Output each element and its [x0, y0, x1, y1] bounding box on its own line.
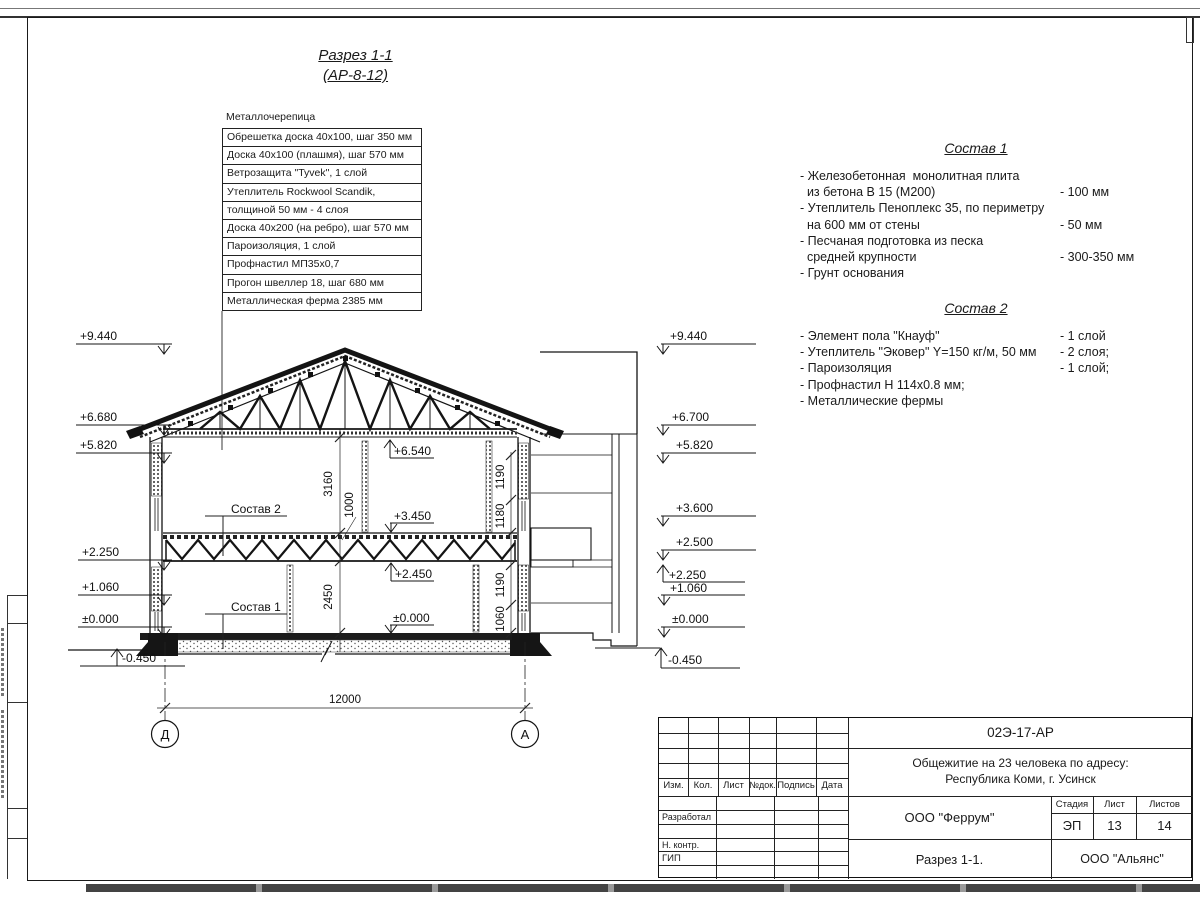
tb-designer-org: ООО "Феррум" — [848, 810, 1051, 825]
annex-window — [531, 528, 591, 560]
mark-right-2500: +2.500 — [676, 535, 713, 549]
tb-sheet-label: Лист — [1093, 799, 1136, 810]
tb-col-podpis: Подпись — [776, 780, 816, 791]
entrance-steps — [573, 633, 637, 646]
annex-elevation — [531, 352, 660, 648]
tb-col-izm: Изм. — [659, 780, 688, 791]
tb-row-gip: ГИП — [662, 853, 716, 864]
tb-col-data: Дата — [816, 780, 848, 791]
dim-total-width: 12000 — [329, 694, 361, 706]
tb-drawing-name: Разрез 1-1. — [848, 852, 1051, 867]
dim-w1-lower: 1060 — [495, 606, 507, 632]
tb-stage-value: ЭП — [1051, 818, 1093, 833]
mark-right-3600: +3.600 — [676, 501, 713, 515]
dim-w2-upper: 1190 — [495, 465, 507, 490]
mark-left-2250: +2.250 — [82, 545, 119, 559]
sostav-ref-leaders — [205, 516, 287, 649]
dim-w2-lower: 1180 — [495, 504, 507, 529]
tb-project-line1: Общежитие на 23 человека по адресу: — [848, 756, 1193, 770]
mark-left-9440: +9.440 — [80, 329, 117, 343]
sostav2-ref-label: Состав 2 — [231, 502, 281, 516]
dim-floor-band: 1000 — [344, 492, 356, 518]
mark-left-0000: ±0.000 — [82, 612, 119, 626]
tb-col-list: Лист — [718, 780, 749, 791]
tb-contractor-org: ООО "Альянс" — [1051, 852, 1193, 866]
tb-col-ndok: №док. — [749, 780, 776, 790]
dim-floor1-height: 2450 — [323, 584, 335, 610]
mark-right-m0450: -0.450 — [668, 653, 702, 667]
mark-right-9440: +9.440 — [670, 329, 707, 343]
scan-artifact-band — [86, 884, 1200, 892]
dim-chain-interior — [335, 429, 356, 652]
mark-right-1060: +1.060 — [670, 581, 707, 595]
mark-right-2250: +2.250 — [669, 568, 706, 582]
mark-left-1060: +1.060 — [82, 580, 119, 594]
left-wall — [150, 437, 162, 633]
axis-bubble-left: Д — [161, 727, 170, 742]
drawing-sheet: { "title": {"line1": "Разрез 1-1", "line… — [0, 0, 1200, 900]
tb-doc-number: 02Э-17-АР — [848, 725, 1193, 740]
mark-right-5820: +5.820 — [676, 438, 713, 452]
mark-inner-6540: +6.540 — [394, 444, 431, 458]
mark-right-6700: +6.700 — [672, 410, 709, 424]
axis-bubble-right: А — [521, 727, 530, 742]
tb-sheets-label: Листов — [1136, 799, 1193, 810]
mark-left-6680: +6.680 — [80, 410, 117, 424]
roof-truss — [163, 356, 517, 429]
floor-truss — [166, 540, 515, 559]
dim-w1-upper: 1190 — [495, 573, 507, 598]
right-wall — [518, 437, 530, 633]
axis-bubbles — [152, 721, 539, 748]
mark-right-0000: ±0.000 — [672, 612, 709, 626]
tb-project-line2: Республика Коми, г. Усинск — [848, 772, 1193, 786]
tb-row-nkontr: Н. контр. — [662, 840, 716, 850]
tb-col-kol: Кол. — [688, 780, 718, 791]
mark-inner-3450: +3.450 — [394, 509, 431, 523]
mark-inner-0000: ±0.000 — [393, 611, 430, 625]
tb-stage-label: Стадия — [1051, 799, 1093, 810]
tb-sheets-value: 14 — [1136, 818, 1193, 833]
tb-row-razrabotal: Разработал — [662, 812, 716, 822]
sostav1-ref-label: Состав 1 — [231, 600, 281, 614]
title-block: Изм. Кол. Лист №док. Подпись Дата Разраб… — [658, 717, 1192, 878]
mark-inner-2450: +2.450 — [395, 567, 432, 581]
dim-floor2-height: 3160 — [323, 471, 335, 497]
tb-sheet-value: 13 — [1093, 818, 1136, 833]
mark-left-5820: +5.820 — [80, 438, 117, 452]
mark-left-m0450: -0.450 — [122, 651, 156, 665]
